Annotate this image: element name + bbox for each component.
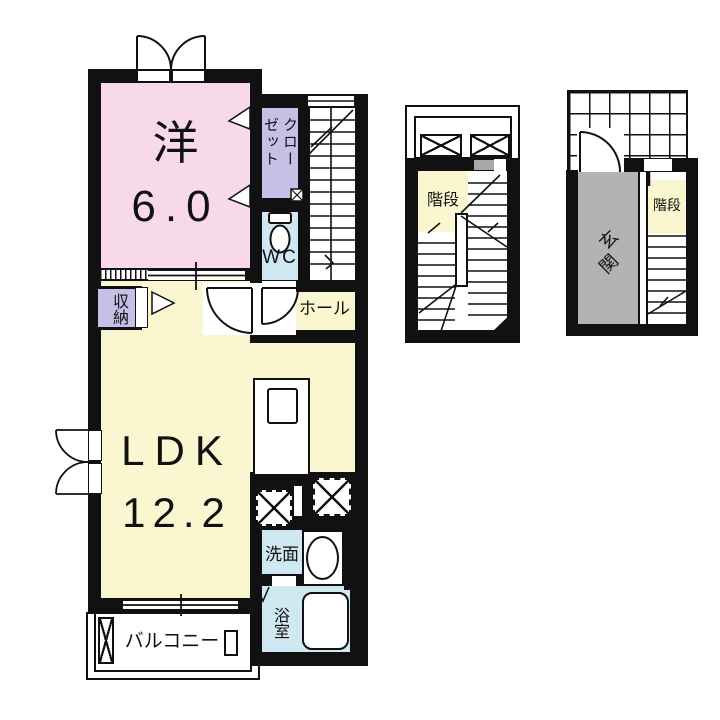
stair-door-mark	[474, 160, 494, 170]
closet-label: クローゼット	[261, 113, 299, 171]
ldk-size: 12.2	[101, 490, 253, 536]
floor-plan-canvas: 洋 6.0 クローゼット WC ホール 収納 LDK 12.2 洗面 浴室 バル…	[0, 0, 720, 720]
kitchen-pass-slit	[294, 486, 302, 516]
wall-segment	[507, 158, 520, 343]
wall-segment	[686, 158, 698, 336]
stair-top-window	[308, 96, 354, 106]
sliding-door	[148, 270, 245, 281]
wall-segment	[566, 324, 698, 336]
stair-center-rail	[455, 213, 468, 287]
entrance-step-divider	[638, 172, 648, 324]
hatched-box	[256, 490, 292, 526]
washroom-label: 洗面	[260, 546, 304, 565]
casement-window-frame	[88, 430, 102, 461]
wc-room	[262, 212, 298, 280]
ldk-name: LDK	[101, 428, 253, 474]
bathtub	[302, 592, 349, 650]
bath-door-gap	[272, 576, 296, 586]
entry-door-jamb	[172, 70, 205, 82]
wc-door-gap	[262, 281, 296, 292]
entry-door-jamb	[137, 70, 170, 82]
casement-window-arcs	[56, 430, 88, 494]
closet-hatch-strip	[100, 269, 148, 280]
storage-door	[135, 287, 148, 328]
stair-door-gap	[494, 159, 506, 171]
wall-segment	[250, 652, 368, 666]
hatched-box	[313, 478, 351, 516]
kitchen-sink	[267, 388, 298, 424]
wall-segment	[344, 530, 368, 590]
railing-x-box	[420, 134, 462, 157]
main-stair-treads	[308, 101, 355, 280]
wall-segment	[88, 69, 101, 612]
entrance-label: 玄関	[590, 228, 628, 277]
wall-segment	[298, 94, 310, 292]
vanity-bowl	[306, 536, 339, 580]
mid-stairs-label: 階段	[418, 192, 468, 210]
railing-x-box	[470, 134, 510, 157]
western-room-name: 洋	[101, 118, 250, 169]
french-door-symbol	[137, 36, 205, 70]
balcony-label: バルコニー	[116, 632, 228, 653]
storage-label: 収納	[107, 289, 129, 329]
western-room-size: 6.0	[101, 183, 250, 231]
wall-segment	[566, 170, 578, 336]
stair-access-gap	[644, 159, 672, 171]
ldk-label: LDK 12.2	[101, 428, 253, 536]
wall-segment	[250, 198, 310, 212]
right-stairs-label: 階段	[648, 198, 686, 213]
casement-window-frame	[88, 463, 102, 494]
wall-segment	[350, 586, 368, 652]
hall-label: ホール	[294, 300, 355, 319]
western-room-label: 洋 6.0	[101, 118, 250, 231]
wall-segment	[405, 330, 520, 343]
wc-label: WC	[262, 248, 298, 269]
balcony-hatch-box	[98, 617, 114, 664]
entrance-door-zone	[577, 128, 624, 172]
bathroom-label: 浴室	[268, 598, 290, 648]
sliding-window	[123, 600, 238, 610]
wall-segment	[405, 158, 418, 343]
